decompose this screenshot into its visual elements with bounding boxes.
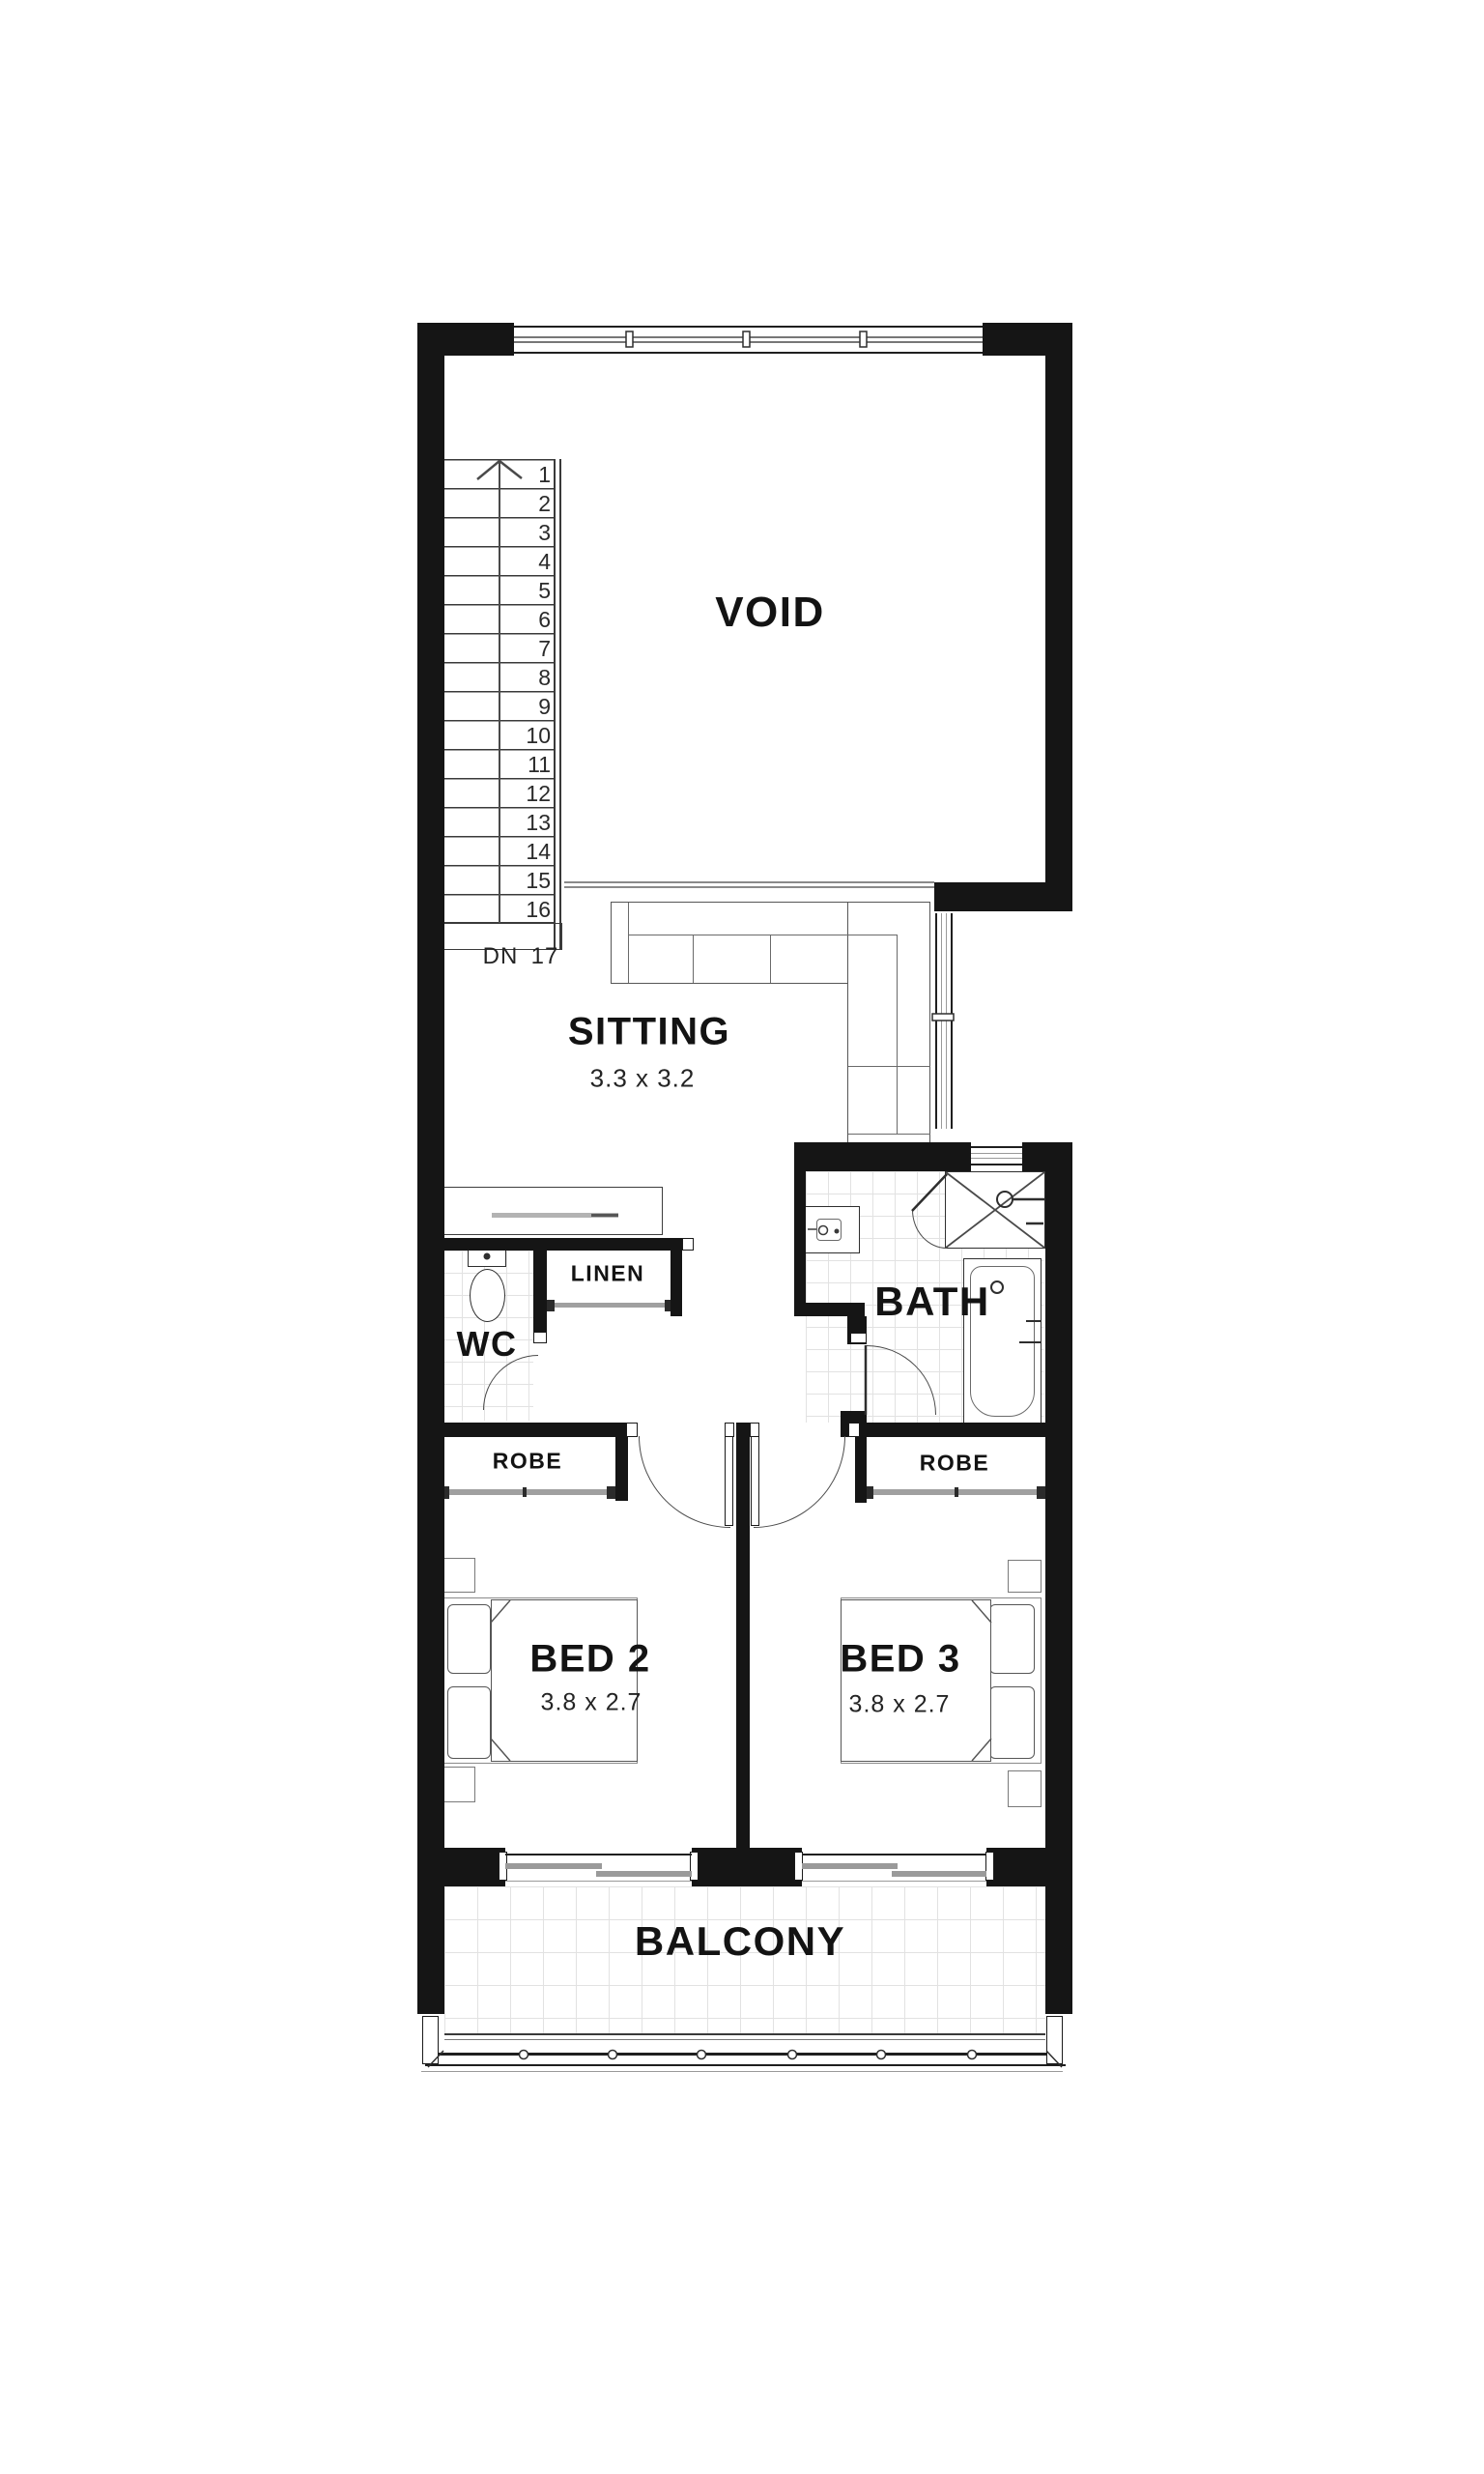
room-label-void: VOID xyxy=(715,589,825,637)
railing-post xyxy=(698,2051,706,2059)
window-mullion xyxy=(743,331,750,347)
room-label-robe-left: ROBE xyxy=(493,1449,562,1475)
room-label-linen: LINEN xyxy=(571,1261,645,1287)
bed2-duvet-fold xyxy=(491,1739,510,1761)
railing-post xyxy=(520,2051,528,2059)
window-mullion xyxy=(932,1014,954,1021)
vanity-tap-icon xyxy=(819,1226,828,1235)
window-mullion xyxy=(626,331,633,347)
room-label-bed2: BED 2 xyxy=(529,1638,650,1682)
toilet-button-icon xyxy=(484,1253,491,1260)
stair-down-label: DN xyxy=(483,943,519,970)
detail-overlay xyxy=(0,0,1484,2474)
floor-plan: 1 2 3 4 5 6 7 8 9 10 11 12 13 14 15 16 xyxy=(0,0,1484,2474)
railing-end-brace xyxy=(428,2051,443,2067)
railing-end-brace xyxy=(1046,2051,1062,2067)
room-label-robe-right: ROBE xyxy=(920,1451,989,1477)
bed2-duvet-fold xyxy=(491,1600,510,1623)
room-label-bed3: BED 3 xyxy=(840,1638,960,1682)
stair-number-17: 17 xyxy=(531,943,559,970)
room-dims-bed3: 3.8 x 2.7 xyxy=(849,1691,951,1719)
railing-post xyxy=(877,2051,886,2059)
room-label-sitting: SITTING xyxy=(568,1011,730,1054)
railing-post xyxy=(968,2051,977,2059)
window-mullion xyxy=(860,331,867,347)
railing-post xyxy=(609,2051,617,2059)
room-label-balcony: BALCONY xyxy=(635,1918,845,1965)
shower-door-leaf xyxy=(912,1174,947,1211)
room-dims-bed2: 3.8 x 2.7 xyxy=(541,1689,642,1717)
room-label-bath: BATH xyxy=(874,1279,990,1325)
railing-post xyxy=(788,2051,797,2059)
stair-up-arrow-icon xyxy=(477,461,522,479)
bathtub-tap-icon xyxy=(991,1281,1003,1293)
room-dims-sitting: 3.3 x 3.2 xyxy=(590,1064,696,1094)
bed3-duvet-fold xyxy=(972,1739,991,1761)
room-label-wc: WC xyxy=(457,1324,518,1365)
vanity-tap-icon xyxy=(835,1229,840,1234)
bed3-duvet-fold xyxy=(972,1600,991,1623)
